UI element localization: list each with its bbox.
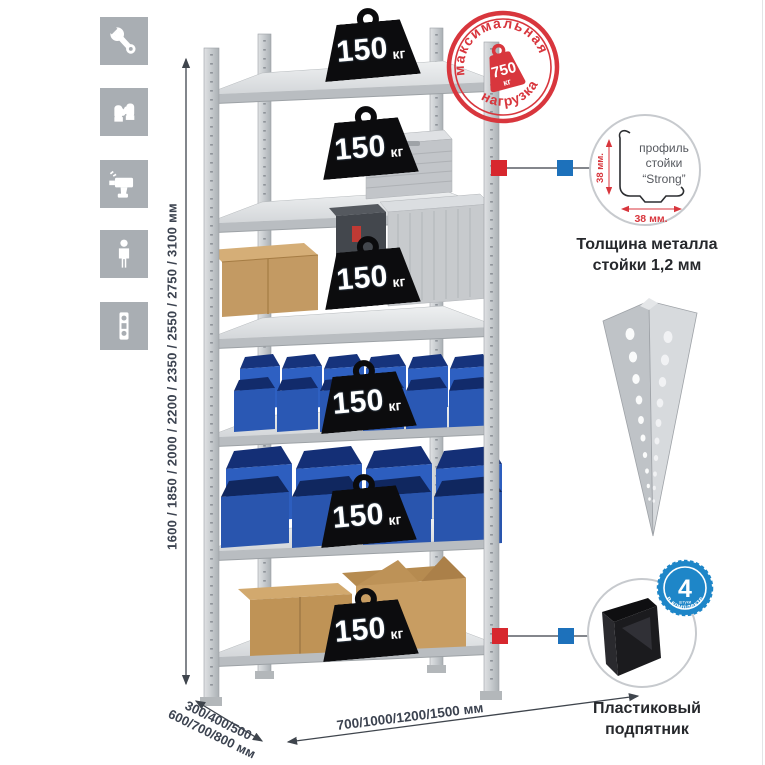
post-marker-bottom-red <box>492 628 508 644</box>
profile-dim-vertical: 38 мм. <box>595 153 606 183</box>
load-value: 150 <box>335 32 389 70</box>
sidebar-tile-assembly <box>100 17 148 65</box>
foot-caption-line2: подпятник <box>605 721 689 738</box>
rack-post-back-left <box>258 34 271 672</box>
shelving-infographic: 38 мм. 38 мм. профиль стойки “Strong” <box>0 0 765 765</box>
sidebar-tile-gloves <box>100 88 148 136</box>
rack-post-front-left <box>200 48 222 706</box>
load-value: 150 <box>333 612 387 650</box>
foot-caption: Пластиковый подпятник <box>562 699 732 741</box>
load-value: 150 <box>335 260 389 298</box>
sidebar-tile-person <box>100 230 148 278</box>
load-unit: кг <box>390 143 404 160</box>
height-dimension-label: 1600 / 1850 / 2000 / 2200 / 2350 / 2550 … <box>165 97 180 657</box>
upright-post-image <box>603 298 697 536</box>
shelf-load-weight-2: 150кг <box>317 102 419 180</box>
load-value: 150 <box>331 498 385 536</box>
profile-detail: 38 мм. 38 мм. профиль стойки “Strong” <box>590 115 700 225</box>
profile-caption-line2: стойки 1,2 мм <box>593 257 702 274</box>
load-unit: кг <box>392 273 406 290</box>
drill-icon <box>107 167 141 201</box>
spirit-level-icon <box>107 309 141 343</box>
max-load-stamp: максимальная нагрузка 750 кг <box>440 4 566 130</box>
detail-marker-bottom-blue <box>558 628 574 644</box>
profile-caption-line1: Толщина металла <box>576 236 717 253</box>
load-value: 150 <box>331 384 385 422</box>
shelf-load-weight-3: 150кг <box>319 232 421 310</box>
foot-detail: 4 штуки в комплекте <box>588 561 712 687</box>
shelf-load-weight-1: 150кг <box>319 4 421 82</box>
sidebar-tile-level <box>100 302 148 350</box>
load-unit: кг <box>390 625 404 642</box>
gloves-icon <box>107 95 141 129</box>
profile-caption: Толщина металла стойки 1,2 мм <box>562 235 732 277</box>
profile-label-line1: профиль <box>639 141 689 155</box>
shelf-load-weight-6: 150кг <box>317 584 419 662</box>
load-unit: кг <box>388 511 402 528</box>
shelf-load-weight-4: 150кг <box>315 356 417 434</box>
foot-caption-line1: Пластиковый <box>593 700 701 717</box>
wrench-icon <box>107 24 141 58</box>
cardboard-box-small <box>210 243 318 317</box>
load-value: 150 <box>333 130 387 168</box>
person-icon <box>107 237 141 271</box>
profile-dim-horizontal: 38 мм. <box>634 213 667 225</box>
load-unit: кг <box>388 397 402 414</box>
shelf-load-weight-5: 150кг <box>315 470 417 548</box>
rack-feet-back <box>255 665 446 679</box>
post-marker-top-red <box>491 160 507 176</box>
load-unit: кг <box>392 45 406 62</box>
kit-count-badge: 4 штуки в комплекте <box>658 561 712 615</box>
profile-label-line3: “Strong” <box>642 172 685 186</box>
profile-label-line2: стойки <box>646 156 683 170</box>
sidebar-tile-drill <box>100 160 148 208</box>
detail-marker-top-blue <box>557 160 573 176</box>
